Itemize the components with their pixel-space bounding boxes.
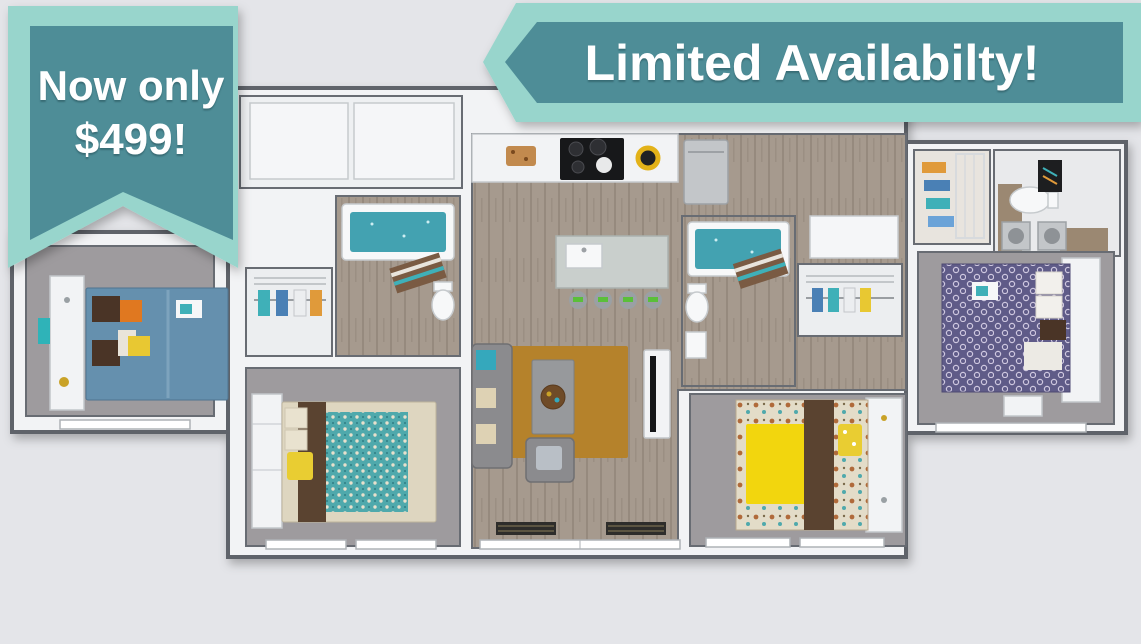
bathroom-2 [682, 216, 795, 386]
brown-pillow [1040, 320, 1066, 340]
hanging-clothes [812, 288, 823, 312]
entry-closets [240, 96, 462, 188]
tv-console [644, 350, 670, 438]
folded-blanket [1024, 342, 1062, 370]
dresser [1004, 396, 1042, 416]
window [266, 540, 346, 549]
tv [650, 356, 656, 432]
bathroom-3-laundry [994, 150, 1120, 256]
window [800, 538, 884, 547]
walk-in-closet [914, 150, 990, 244]
brown-pillow [92, 296, 120, 322]
closet-door [250, 103, 348, 179]
price-line2: $499! [75, 115, 188, 164]
closet-door [354, 103, 454, 179]
yellow-pillow [287, 452, 313, 480]
yellow-pan [638, 148, 658, 168]
floor-plan-canvas: Now only $499! Limited Availabilty! [0, 0, 1141, 644]
window [356, 540, 436, 549]
serving-tray [541, 385, 565, 409]
toilet [686, 292, 708, 322]
bathroom-1 [336, 196, 460, 356]
kettle [596, 157, 612, 173]
hanging-clothes [922, 162, 946, 173]
hanging-clothes [258, 290, 270, 316]
wall-art [1038, 160, 1062, 192]
cream-pillow [476, 388, 496, 408]
throw-blanket [804, 400, 834, 530]
refrigerator [684, 140, 728, 204]
window [936, 423, 1086, 432]
pillow [285, 408, 307, 428]
window [706, 538, 790, 547]
pillow [1036, 272, 1062, 294]
gray-pillow [536, 446, 562, 470]
headboard-dresser [50, 276, 84, 410]
sink [686, 332, 706, 358]
headboard-shelf [252, 394, 282, 528]
gold-bottle [59, 377, 69, 387]
availability-label: Limited Availabilty! [585, 35, 1040, 91]
hall-closet [246, 268, 332, 356]
bedroom-4 [918, 252, 1114, 432]
bedroom-1 [26, 246, 228, 429]
storage-door [810, 216, 898, 258]
window [60, 420, 190, 429]
price-line1: Now only [38, 62, 225, 109]
teal-pillow [476, 350, 496, 370]
availability-banner: Limited Availabilty! [483, 3, 1141, 122]
yellow-pillow [128, 336, 150, 356]
teal-decor [38, 318, 50, 344]
floorplan-ad-image: Now only $499! Limited Availabilty! [0, 0, 1141, 644]
bedroom-3 [690, 394, 906, 547]
hallway-closet [798, 216, 902, 336]
polka-pillow [838, 424, 862, 456]
toilet [432, 290, 454, 320]
cutting-board [506, 146, 536, 166]
orange-pillow [120, 300, 142, 322]
bedroom-2 [246, 368, 460, 549]
